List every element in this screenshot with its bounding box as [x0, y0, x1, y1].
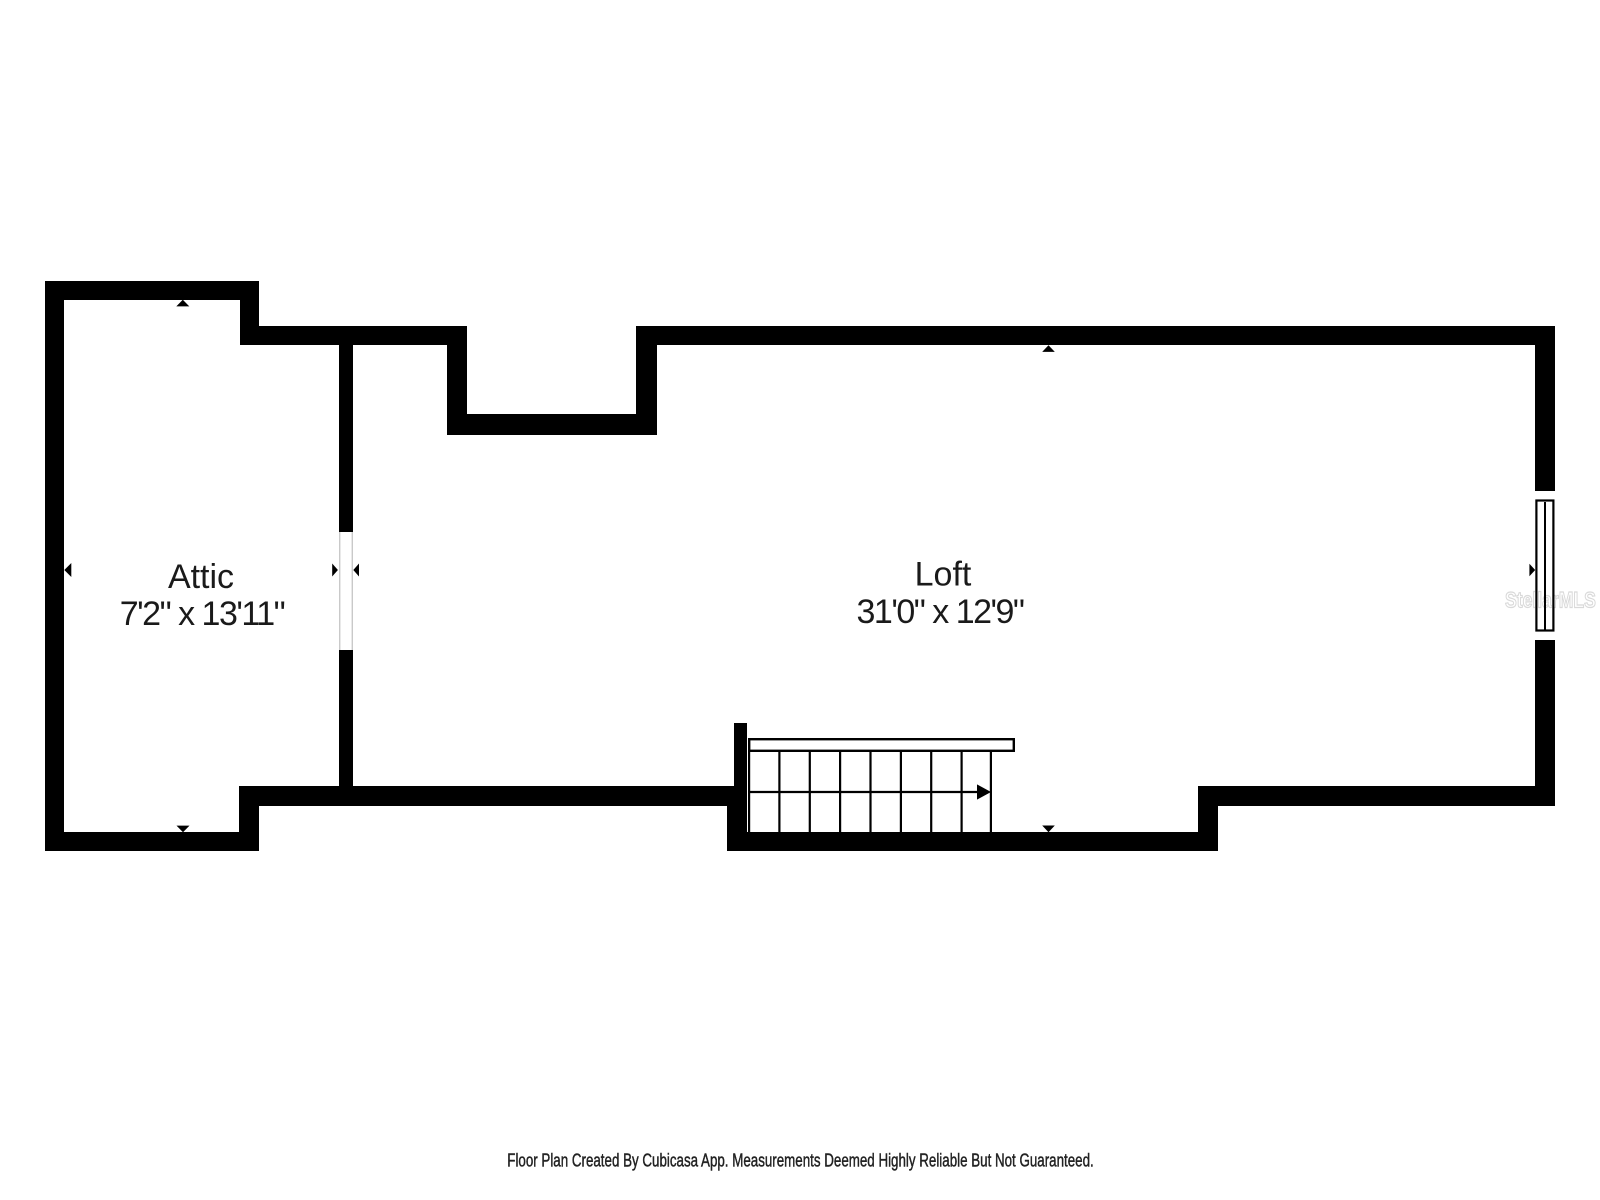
svg-text:Loft: Loft	[915, 556, 972, 594]
svg-text:7'2" x 13'11": 7'2" x 13'11"	[120, 595, 285, 633]
svg-text:StellarMLS: StellarMLS	[1505, 589, 1596, 613]
svg-text:31'0" x 12'9": 31'0" x 12'9"	[857, 593, 1024, 631]
svg-text:Attic: Attic	[168, 558, 234, 596]
svg-text:Floor Plan Created By Cubicasa: Floor Plan Created By Cubicasa App. Meas…	[507, 1150, 1093, 1171]
